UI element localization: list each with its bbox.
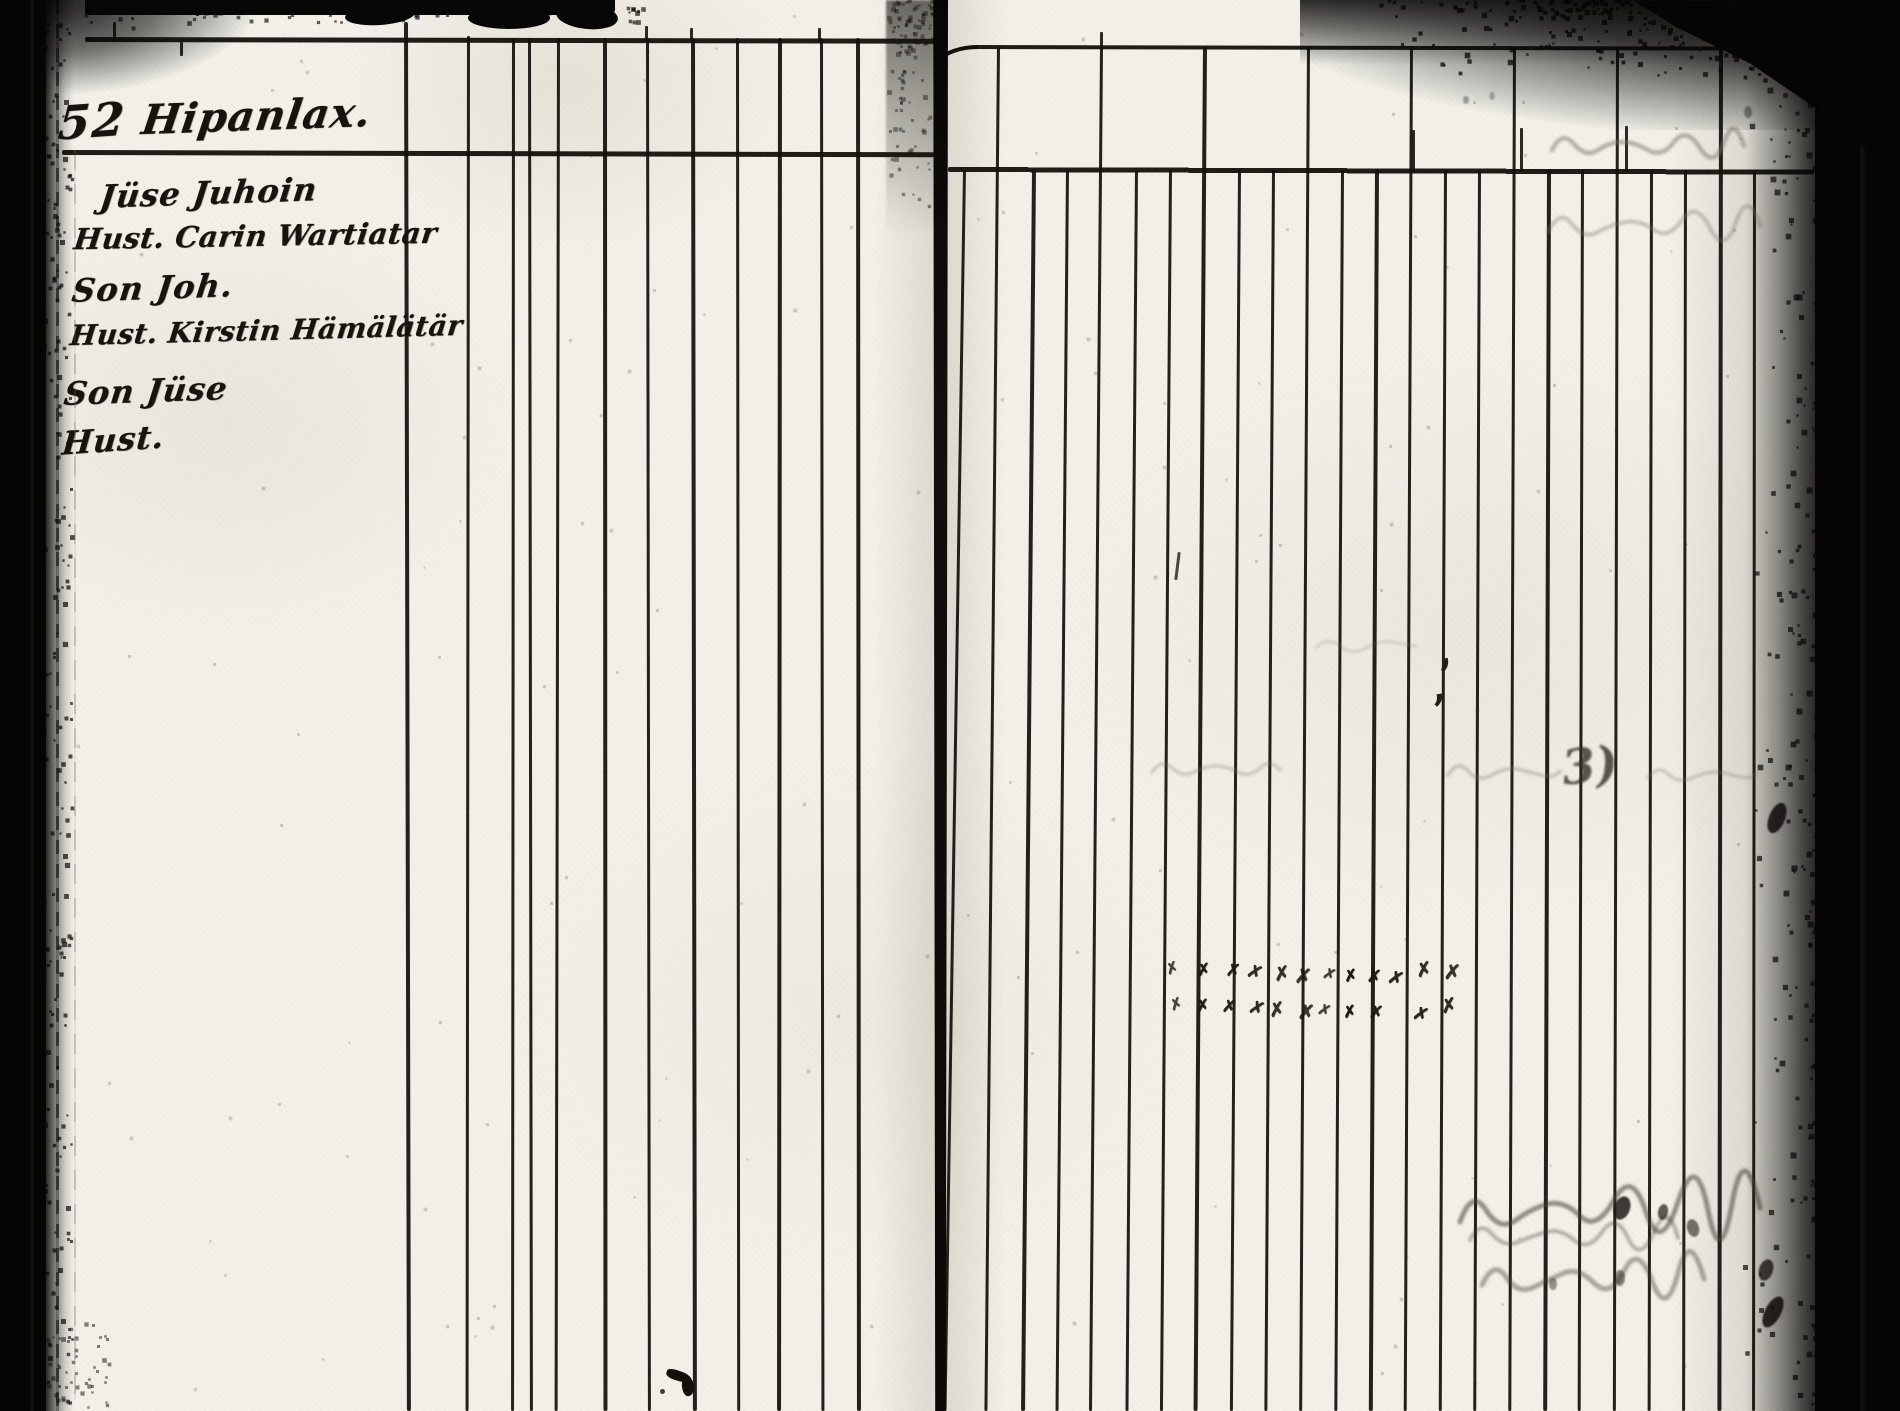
- right-scan-border: [1815, 0, 1900, 1411]
- bleedthrough-overlay: [0, 0, 1900, 1411]
- bleedthrough-writing: [1460, 1171, 1760, 1298]
- left-scan-border: [0, 0, 46, 1411]
- right-border-fade: [1745, 0, 1820, 1411]
- ink-blot-group: [1463, 92, 1790, 1331]
- top-left-corner-smudge: [40, 0, 255, 95]
- bleedthrough-smudge: [1152, 129, 1760, 780]
- left-margin-rule: [74, 150, 76, 1400]
- scanned-register-spread: 52 Hipanlax. Jüse Juhoin Hust. Carin War…: [0, 0, 1900, 1411]
- page-edge-line: [56, 0, 59, 1411]
- top-band-lump: [468, 7, 550, 29]
- binding-smudge: [886, 0, 938, 235]
- left-border-fade: [44, 0, 74, 1411]
